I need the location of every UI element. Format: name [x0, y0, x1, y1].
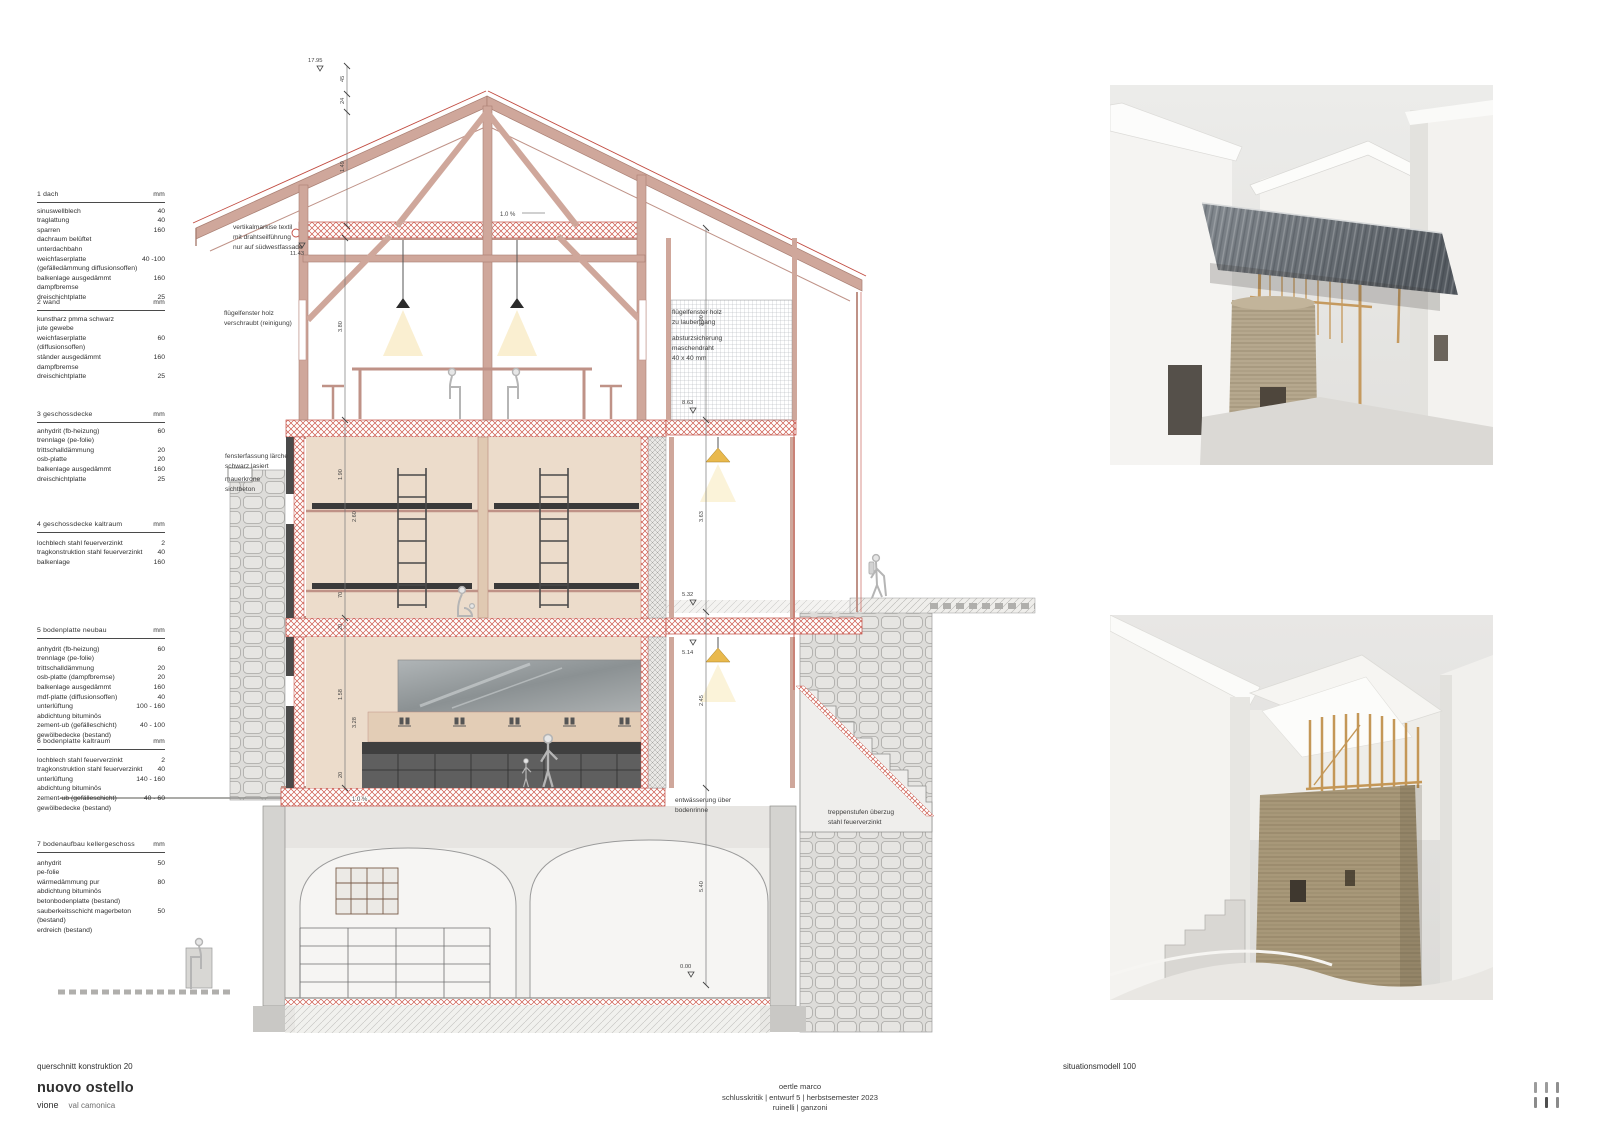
- spec-value: 40 - 60: [144, 794, 165, 804]
- slope-top: 1.0 %: [500, 212, 516, 218]
- spec-value: 20: [157, 455, 165, 465]
- spec-value: 40: [157, 216, 165, 226]
- spec-row: unterdachbahn: [37, 245, 165, 255]
- spec-row: balkenlage ausgedämmt160: [37, 274, 165, 284]
- model-photo-top: [1110, 85, 1493, 465]
- spec-row: abdichtung bituminös: [37, 712, 165, 722]
- spec-rows: anhydrit (fb-heizung)60trennlage (pe-fol…: [37, 645, 165, 741]
- spec-title: 4 geschossdecke kaltraum: [37, 520, 122, 530]
- spec-label: ständer ausgedämmt: [37, 353, 154, 363]
- dim-149: 1.49: [340, 161, 346, 172]
- spec-row: traglattung40: [37, 216, 165, 226]
- spec-value: 60: [157, 427, 165, 437]
- spec-row: tragkonstruktion stahl feuerverzinkt40: [37, 548, 165, 558]
- spec-label: abdichtung bituminös: [37, 784, 165, 794]
- spec-label: balkenlage ausgedämmt: [37, 274, 154, 284]
- spec-value: 80: [157, 878, 165, 888]
- spec-row: balkenlage ausgedämmt160: [37, 465, 165, 475]
- spec-unit: mm: [153, 626, 165, 636]
- spec-label: pe-folie: [37, 868, 165, 878]
- spec-rows: kunstharz pmma schwarzjute gewebeweichfa…: [37, 315, 165, 382]
- spec-row: balkenlage ausgedämmt160: [37, 683, 165, 693]
- spec-row: anhydrit50: [37, 859, 165, 869]
- spec-title: 5 bodenplatte neubau: [37, 626, 107, 636]
- vault-arch-right: [530, 840, 768, 998]
- spec-label: unterlüftung: [37, 775, 136, 785]
- spec-value: 25: [157, 372, 165, 382]
- spec-table-dach: 1 dachmm sinuswellblech40traglattung40sp…: [37, 190, 165, 303]
- spec-label: kunstharz pmma schwarz: [37, 315, 165, 325]
- spec-label: (diffusionsoffen): [37, 343, 165, 353]
- spec-value: 20: [157, 673, 165, 683]
- annotation-markise: vertikalmarkise textil mit drahtseilführ…: [233, 223, 328, 253]
- dim-245: 2.45: [699, 695, 705, 706]
- spec-row: dampfbremse: [37, 283, 165, 293]
- spec-row: anhydrit (fb-heizung)60: [37, 645, 165, 655]
- window-opening: [1290, 880, 1306, 902]
- spec-value: 2: [161, 539, 165, 549]
- elev-532: 5.32: [682, 592, 693, 598]
- spec-label: tragkonstruktion stahl feuerverzinkt: [37, 765, 157, 775]
- dim-260: 2.60: [352, 511, 358, 522]
- spec-table-wand: 2 wandmm kunstharz pmma schwarzjute gewe…: [37, 298, 165, 382]
- spec-table-bodenplatte-kaltraum: 6 bodenplatte kaltraummm lochblech stahl…: [37, 737, 165, 813]
- spec-value: 60: [157, 334, 165, 344]
- right-wall: [1440, 655, 1493, 1000]
- spec-row: abdichtung bituminös: [37, 887, 165, 897]
- spec-row: unterlüftung100 - 160: [37, 702, 165, 712]
- spec-label: erdreich (bestand): [37, 926, 165, 936]
- basement: [253, 806, 806, 1033]
- vault-arch-left: [300, 848, 516, 998]
- spec-label: anhydrit (fb-heizung): [37, 427, 157, 437]
- logo-bar: [1545, 1097, 1548, 1108]
- spec-row: dreischichtplatte25: [37, 475, 165, 485]
- spec-title: 2 wand: [37, 298, 60, 308]
- school-logo: [1534, 1082, 1559, 1108]
- elev-514: 5.14: [682, 650, 694, 656]
- spec-value: 25: [157, 475, 165, 485]
- drawing-caption: querschnitt konstruktion 20: [37, 1062, 133, 1071]
- spec-value: 40: [157, 548, 165, 558]
- annotation-fenster-right: flügelfenster holz zu laubengang: [672, 308, 752, 328]
- spec-row: erdreich (bestand): [37, 926, 165, 936]
- spec-row: pe-folie: [37, 868, 165, 878]
- spec-unit: mm: [153, 298, 165, 308]
- spec-label: sparren: [37, 226, 154, 236]
- spec-rows: anhydrit (fb-heizung)60trennlage (pe-fol…: [37, 427, 165, 485]
- spec-unit: mm: [153, 410, 165, 420]
- spec-title: 3 geschossdecke: [37, 410, 93, 420]
- elev-000: 0.00: [680, 964, 691, 970]
- spec-rows: lochblech stahl feuerverzinkt2tragkonstr…: [37, 756, 165, 814]
- spec-row: dreischichtplatte25: [37, 372, 165, 382]
- spec-row: (diffusionsoffen): [37, 343, 165, 353]
- spec-label: dreischichtplatte: [37, 475, 157, 485]
- model-photo-bottom: [1110, 615, 1493, 1000]
- spec-value: 20: [157, 664, 165, 674]
- annotation-absturz: absturzsicherung maschendraht 40 x 40 mm: [672, 334, 752, 364]
- place-region: val camonica: [69, 1101, 116, 1110]
- spec-row: zement-ub (gefälleschicht)40 - 60: [37, 794, 165, 804]
- spec-table-bodenplatte-neubau: 5 bodenplatte neubaumm anhydrit (fb-heiz…: [37, 626, 165, 741]
- annotation-treppe: treppenstufen überzug stahl feuerverzink…: [828, 808, 918, 828]
- spec-label: wärmedämmung pur: [37, 878, 157, 888]
- spec-value: 40: [157, 765, 165, 775]
- spec-row: lochblech stahl feuerverzinkt2: [37, 756, 165, 766]
- annotation-fenster-left: flügelfenster holz verschraubt (reinigun…: [224, 309, 319, 329]
- spec-label: osb-platte (dampfbremse): [37, 673, 157, 683]
- spec-table-bodenaufbau-keller: 7 bodenaufbau kellergeschossmm anhydrit5…: [37, 840, 165, 935]
- spec-label: sauberkeitsschicht magerbeton (bestand): [37, 907, 157, 926]
- spec-label: dachraum belüftet: [37, 235, 165, 245]
- spec-label: tragkonstruktion stahl feuerverzinkt: [37, 548, 157, 558]
- logo-bar: [1534, 1097, 1537, 1108]
- spec-row: abdichtung bituminös: [37, 784, 165, 794]
- spec-row: tragkonstruktion stahl feuerverzinkt40: [37, 765, 165, 775]
- spec-rows: sinuswellblech40traglattung40sparren160d…: [37, 207, 165, 303]
- spec-label: trittschalldämmung: [37, 446, 157, 456]
- spec-title: 6 bodenplatte kaltraum: [37, 737, 111, 747]
- spec-value: 160: [154, 465, 165, 475]
- spec-value: 40: [157, 207, 165, 217]
- balcony-lamp-1: [700, 437, 736, 502]
- dim-70: 70: [338, 592, 344, 598]
- spec-label: weichfaserplatte: [37, 255, 142, 265]
- counter-top: [362, 742, 654, 754]
- spec-row: sparren160: [37, 226, 165, 236]
- dim-540: 5.40: [699, 881, 705, 892]
- model-photo-bottom-art: [1110, 615, 1493, 1000]
- spec-label: unterdachbahn: [37, 245, 165, 255]
- model-photo-top-art: [1110, 85, 1493, 465]
- spec-row: ständer ausgedämmt160: [37, 353, 165, 363]
- dim-190: 1.90: [338, 469, 344, 480]
- spec-row: osb-platte (dampfbremse)20: [37, 673, 165, 683]
- elev-863: 8.63: [682, 400, 693, 406]
- spec-value: 2: [161, 756, 165, 766]
- spec-label: trennlage (pe-folie): [37, 436, 165, 446]
- credit-profs: ruinelli | ganzoni: [640, 1103, 960, 1114]
- spec-row: zement-ub (gefälleschicht)40 - 100: [37, 721, 165, 731]
- spec-header: 7 bodenaufbau kellergeschossmm: [37, 840, 165, 853]
- window-opening: [1345, 870, 1355, 886]
- dim-328: 3.28: [352, 717, 358, 728]
- spec-value: 160: [154, 274, 165, 284]
- dim-380: 3.80: [338, 321, 344, 332]
- spec-value: 40 - 100: [140, 721, 165, 731]
- spec-title: 1 dach: [37, 190, 59, 200]
- dorm-floor: [286, 437, 666, 618]
- spec-value: 60: [157, 645, 165, 655]
- spec-label: dampfbremse: [37, 283, 165, 293]
- balcony-lamp-2: [700, 637, 736, 702]
- spec-row: jute gewebe: [37, 324, 165, 334]
- spec-value: 20: [157, 446, 165, 456]
- spec-value: 40: [157, 693, 165, 703]
- spec-table-geschossdecke: 3 geschossdeckemm anhydrit (fb-heizung)6…: [37, 410, 165, 484]
- logo-bar: [1556, 1082, 1559, 1093]
- spec-value: 160: [154, 683, 165, 693]
- spec-header: 4 geschossdecke kaltraummm: [37, 520, 165, 533]
- spec-value: 100 - 160: [136, 702, 165, 712]
- spec-label: sinuswellblech: [37, 207, 157, 217]
- spec-label: gewölbedecke (bestand): [37, 804, 165, 814]
- spec-row: weichfaserplatte40 -100: [37, 255, 165, 265]
- spec-row: betonbodenplatte (bestand): [37, 897, 165, 907]
- model-caption: situationsmodell 100: [1063, 1062, 1136, 1071]
- spec-label: weichfaserplatte: [37, 334, 157, 344]
- spec-row: gewölbedecke (bestand): [37, 804, 165, 814]
- spec-header: 5 bodenplatte neubaumm: [37, 626, 165, 639]
- spec-label: zement-ub (gefälleschicht): [37, 721, 140, 731]
- dim-158: 1.58: [338, 689, 344, 700]
- spec-row: osb-platte20: [37, 455, 165, 465]
- spec-row: anhydrit (fb-heizung)60: [37, 427, 165, 437]
- spec-label: jute gewebe: [37, 324, 165, 334]
- spec-rows: anhydrit50pe-foliewärmedämmung pur80abdi…: [37, 859, 165, 936]
- spec-value: 40 -100: [142, 255, 165, 265]
- mirror: [398, 660, 652, 712]
- spec-label: zement-ub (gefälleschicht): [37, 794, 144, 804]
- window-opening: [1434, 335, 1448, 361]
- spec-unit: mm: [153, 840, 165, 850]
- spec-label: anhydrit: [37, 859, 157, 869]
- bar-floor: [286, 637, 666, 788]
- spec-row: dampfbremse: [37, 363, 165, 373]
- spec-value: 160: [154, 226, 165, 236]
- annotation-entwaesserung: entwässerung über bodenrinne: [675, 796, 765, 816]
- spec-label: balkenlage ausgedämmt: [37, 683, 154, 693]
- spec-label: balkenlage ausgedämmt: [37, 465, 154, 475]
- spec-header: 6 bodenplatte kaltraummm: [37, 737, 165, 750]
- spec-row: trittschalldämmung20: [37, 664, 165, 674]
- spec-row: dachraum belüftet: [37, 235, 165, 245]
- cellar-window: [336, 868, 398, 914]
- spec-row: weichfaserplatte60: [37, 334, 165, 344]
- spec-unit: mm: [153, 520, 165, 530]
- spec-value: 160: [154, 353, 165, 363]
- spec-row: sinuswellblech40: [37, 207, 165, 217]
- dim-45: 45: [340, 76, 346, 82]
- spec-table-geschossdecke-kaltraum: 4 geschossdecke kaltraummm lochblech sta…: [37, 520, 165, 567]
- spec-label: osb-platte: [37, 455, 157, 465]
- spec-row: trittschalldämmung20: [37, 446, 165, 456]
- spec-label: mdf-platte (diffusionsoffen): [37, 693, 157, 703]
- spec-label: (gefälledämmung diffusionsoffen): [37, 264, 165, 274]
- spec-label: traglattung: [37, 216, 157, 226]
- dim-20a: 20: [338, 624, 344, 630]
- spec-unit: mm: [153, 190, 165, 200]
- dim-363: 3.63: [699, 511, 705, 522]
- logo-bar: [1556, 1097, 1559, 1108]
- project-title: nuovo ostello: [37, 1080, 134, 1096]
- spec-header: 1 dachmm: [37, 190, 165, 203]
- spec-label: trennlage (pe-folie): [37, 654, 165, 664]
- spec-row: unterlüftung140 - 160: [37, 775, 165, 785]
- spec-label: lochblech stahl feuerverzinkt: [37, 539, 161, 549]
- spec-rows: lochblech stahl feuerverzinkt2tragkonstr…: [37, 539, 165, 568]
- spec-row: (gefälledämmung diffusionsoffen): [37, 264, 165, 274]
- spec-unit: mm: [153, 737, 165, 747]
- spec-row: sauberkeitsschicht magerbeton (bestand)5…: [37, 907, 165, 926]
- spec-value: 50: [157, 859, 165, 869]
- spec-label: dampfbremse: [37, 363, 165, 373]
- spec-title: 7 bodenaufbau kellergeschoss: [37, 840, 135, 850]
- elev-1795: 17.95: [308, 58, 323, 64]
- dim-24: 24: [340, 98, 346, 104]
- spec-label: anhydrit (fb-heizung): [37, 645, 157, 655]
- spec-label: abdichtung bituminös: [37, 887, 165, 897]
- spec-header: 2 wandmm: [37, 298, 165, 311]
- spec-row: wärmedämmung pur80: [37, 878, 165, 888]
- spec-row: kunstharz pmma schwarz: [37, 315, 165, 325]
- spec-label: abdichtung bituminös: [37, 712, 165, 722]
- spec-label: trittschalldämmung: [37, 664, 157, 674]
- spec-label: unterlüftung: [37, 702, 136, 712]
- door-opening: [1168, 365, 1202, 435]
- logo-bar: [1534, 1082, 1537, 1093]
- spec-value: 160: [154, 558, 165, 568]
- spec-label: dreischichtplatte: [37, 372, 157, 382]
- spec-row: lochblech stahl feuerverzinkt2: [37, 539, 165, 549]
- dim-20b: 20: [338, 772, 344, 778]
- annotation-mauerkrone: mauerkrone sichtbeton: [225, 475, 320, 495]
- spec-value: 140 - 160: [136, 775, 165, 785]
- annotation-fassung: fensterfassung lärche schwarz lasiert: [225, 452, 320, 472]
- attic-furniture: [322, 369, 622, 419]
- credit-line: schlusskritik | entwurf 5 | herbstsemest…: [640, 1093, 960, 1104]
- slope-floor: 1.0 %: [352, 797, 368, 803]
- place-name: vione: [37, 1100, 59, 1110]
- spec-value: 50: [157, 907, 165, 926]
- spec-row: balkenlage160: [37, 558, 165, 568]
- credits-block: oertle marco schlusskritik | entwurf 5 |…: [640, 1082, 960, 1114]
- spec-label: balkenlage: [37, 558, 154, 568]
- spec-header: 3 geschossdeckemm: [37, 410, 165, 423]
- logo-bar: [1545, 1082, 1548, 1093]
- spec-row: trennlage (pe-folie): [37, 436, 165, 446]
- spec-label: betonbodenplatte (bestand): [37, 897, 165, 907]
- project-place: vioneval camonica: [37, 1100, 115, 1110]
- spec-row: mdf-platte (diffusionsoffen)40: [37, 693, 165, 703]
- presentation-board: 45 24 1.49 3.80 1.90 2.60 70 20 1.58 3.2…: [0, 0, 1600, 1132]
- credit-name: oertle marco: [640, 1082, 960, 1093]
- spec-label: lochblech stahl feuerverzinkt: [37, 756, 161, 766]
- spec-row: trennlage (pe-folie): [37, 654, 165, 664]
